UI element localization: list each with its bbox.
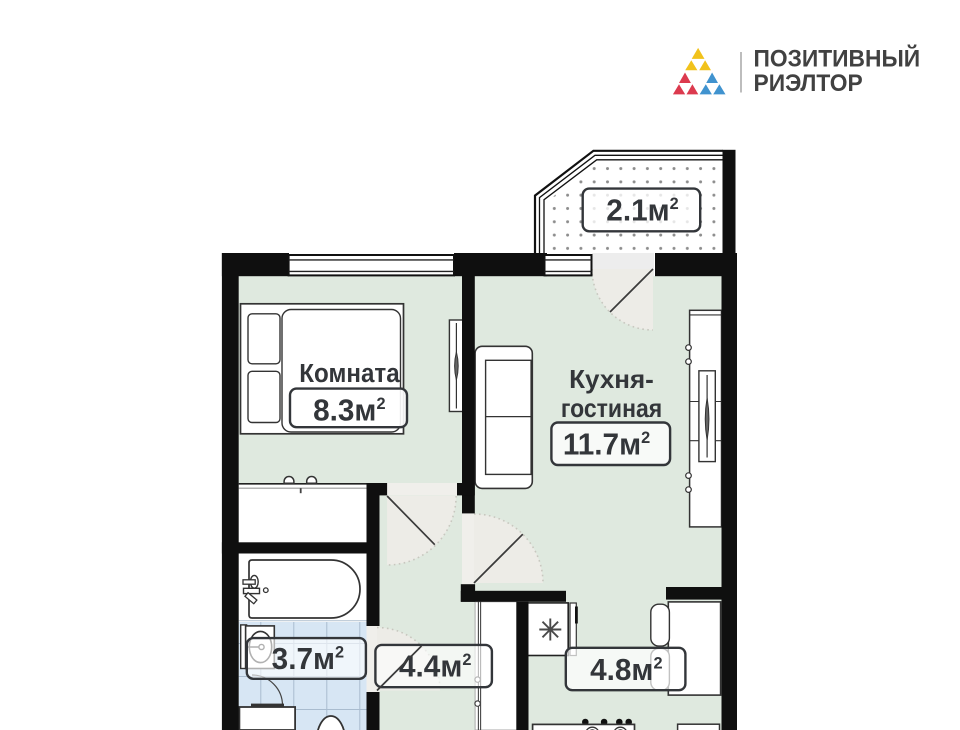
svg-text:3.7м2: 3.7м2	[272, 642, 344, 677]
svg-text:Кухня-: Кухня-	[569, 364, 654, 394]
svg-text:4.8м2: 4.8м2	[590, 652, 662, 687]
svg-text:РИЭЛТОР: РИЭЛТОР	[754, 69, 863, 96]
svg-text:ПОЗИТИВНЫЙ: ПОЗИТИВНЫЙ	[754, 44, 921, 72]
svg-text:8.3м2: 8.3м2	[313, 393, 385, 428]
svg-text:гостиная: гостиная	[561, 395, 662, 424]
svg-text:4.4м2: 4.4м2	[399, 649, 471, 684]
svg-text:11.7м2: 11.7м2	[563, 427, 650, 462]
svg-text:Комната: Комната	[299, 359, 400, 388]
svg-text:2.1м2: 2.1м2	[606, 193, 678, 228]
